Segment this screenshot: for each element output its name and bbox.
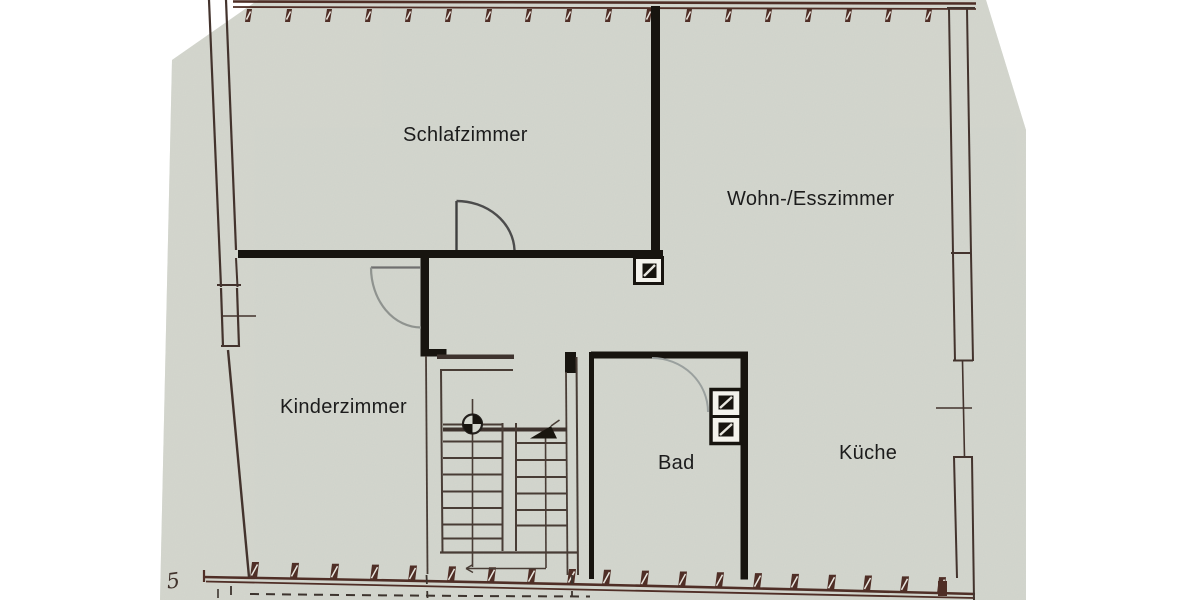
wall-schlafzimmer-bottom [238,250,663,258]
wall-stair-stub [565,352,576,373]
wall-bad-top [591,352,748,359]
room-label-kinderzimmer: Kinderzimmer [280,396,407,418]
floor-plan-page: Schlafzimmer Wohn-/Esszimmer Kinderzimme… [0,0,1200,600]
chimney-shaft-icon [635,258,663,284]
room-label-bad: Bad [658,452,695,474]
room-label-schlafzimmer: Schlafzimmer [403,124,528,146]
ventilation-shafts-icon [711,390,741,444]
scanned-paper [150,0,1040,600]
wall-schlafzimmer-right [651,6,660,258]
floor-plan-canvas: Schlafzimmer Wohn-/Esszimmer Kinderzimme… [0,0,1200,600]
wall-hall-partition [421,256,430,352]
wall-bad-left [589,352,594,579]
room-label-kueche: Küche [839,442,897,464]
wall-bad-right [741,352,749,580]
room-label-wohn-esszimmer: Wohn-/Esszimmer [727,188,895,210]
band-end-tick [938,581,947,596]
